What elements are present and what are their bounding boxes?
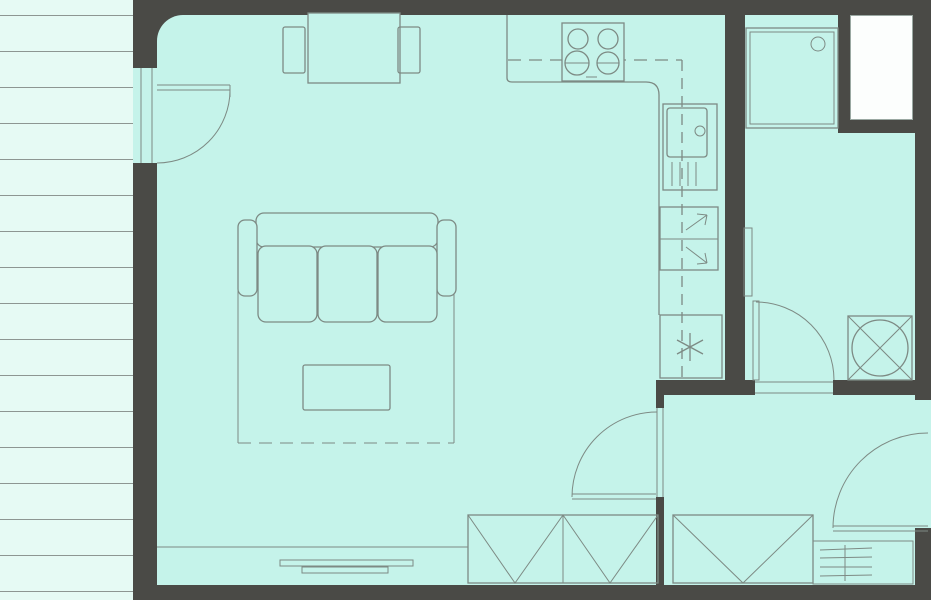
balcony-door — [141, 68, 230, 163]
plan-linework — [0, 0, 931, 600]
bathroom-radiator — [744, 228, 752, 296]
living-room-radiator — [280, 560, 413, 573]
coffee-table — [303, 365, 390, 410]
dining-table — [308, 13, 400, 83]
bathroom-door — [753, 301, 834, 393]
dining-chair-right — [398, 27, 420, 73]
shoe-cabinet — [813, 541, 913, 584]
kitchen-sink — [663, 104, 717, 190]
dining-chair-left — [283, 27, 305, 73]
dining-set — [283, 13, 420, 83]
sofa-three-seat — [238, 213, 456, 322]
shower-tray — [746, 28, 838, 128]
kitchen-wall-cabinets-dashed — [508, 60, 682, 378]
hall-wardrobe — [673, 515, 813, 583]
hob-four-burners — [562, 23, 624, 81]
entrance-door — [833, 433, 928, 531]
washing-machine — [848, 316, 912, 380]
hall-living-door — [572, 408, 663, 499]
living-room-wardrobe — [468, 515, 658, 583]
dishwasher-cabinet — [660, 207, 718, 270]
floor-plan — [0, 0, 931, 600]
fridge-freezer — [660, 315, 722, 378]
